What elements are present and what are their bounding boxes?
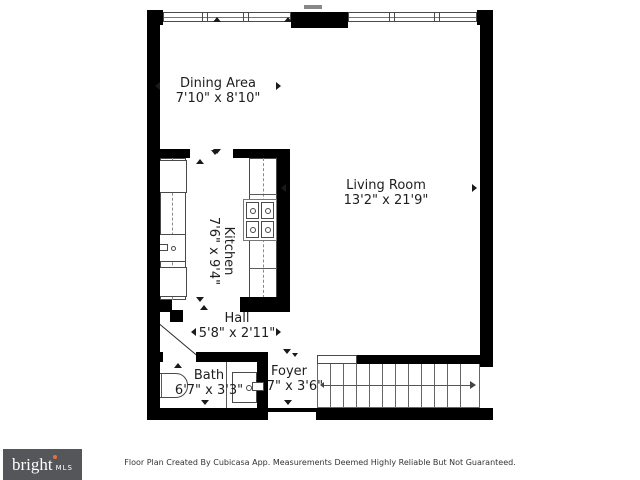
counter-division bbox=[249, 194, 277, 195]
toilet-icon bbox=[252, 382, 264, 391]
window-mullion bbox=[202, 13, 208, 21]
wall-segment bbox=[355, 355, 493, 364]
wall-segment bbox=[160, 149, 190, 158]
opening-marker-icon bbox=[196, 159, 204, 164]
dimension-arrow-icon bbox=[201, 400, 209, 405]
window-glass-line bbox=[164, 17, 290, 18]
window-mullion bbox=[243, 13, 249, 21]
stair-railing bbox=[317, 355, 357, 364]
dimension-arrow-icon bbox=[283, 349, 291, 354]
room-name: Hall bbox=[167, 311, 307, 326]
stair-direction-arrow-icon bbox=[470, 381, 476, 389]
opening-marker-icon bbox=[211, 150, 219, 155]
opening-marker-icon bbox=[196, 297, 204, 302]
room-label-dining-area: Dining Area 7'10" x 8'10" bbox=[148, 76, 288, 106]
wall-segment bbox=[480, 12, 493, 367]
wall-segment bbox=[240, 297, 290, 312]
dimension-arrow-icon bbox=[276, 328, 281, 336]
dimension-arrow-icon bbox=[284, 17, 292, 22]
floor-plan-page: Dining Area 7'10" x 8'10" Living Room 13… bbox=[0, 0, 640, 480]
room-name: Living Room bbox=[316, 178, 456, 193]
wall-segment bbox=[147, 408, 493, 420]
room-label-hall: Hall 5'8" x 2'11" bbox=[167, 311, 307, 341]
sink-drain bbox=[171, 246, 176, 251]
dimension-arrow-icon bbox=[284, 400, 292, 405]
entry-door-opening bbox=[268, 412, 316, 420]
dimension-arrow-icon bbox=[281, 184, 286, 192]
dimension-arrow-icon bbox=[213, 17, 221, 22]
dimension-arrow-icon bbox=[155, 82, 160, 90]
opening-marker-icon bbox=[200, 305, 208, 310]
room-name: Dining Area bbox=[148, 76, 288, 91]
room-label-foyer: Foyer 3'7" x 3'6" bbox=[219, 364, 359, 394]
window-glass-line bbox=[349, 17, 476, 18]
dimension-arrow-icon bbox=[191, 328, 196, 336]
window-mullion bbox=[434, 13, 440, 21]
room-dimensions: 3'7" x 3'6" bbox=[219, 379, 359, 394]
counter-division bbox=[249, 268, 277, 269]
room-dimensions: 13'2" x 21'9" bbox=[316, 193, 456, 208]
window-band bbox=[163, 12, 291, 22]
refrigerator-icon bbox=[158, 160, 187, 193]
kitchen-cabinet bbox=[158, 267, 187, 297]
room-label-living-room: Living Room 13'2" x 21'9" bbox=[316, 178, 456, 208]
wall-segment bbox=[277, 149, 290, 310]
room-name: Kitchen bbox=[221, 181, 236, 321]
wall-segment bbox=[291, 12, 348, 28]
dimension-arrow-icon bbox=[472, 184, 477, 192]
stove-icon bbox=[243, 199, 277, 241]
wall-segment bbox=[170, 310, 183, 322]
wall-mark bbox=[304, 5, 322, 9]
wall-segment bbox=[147, 352, 163, 362]
wall-segment bbox=[147, 300, 172, 312]
room-dimensions: 7'6" x 9'4" bbox=[206, 181, 221, 321]
dimension-arrow-icon bbox=[174, 363, 182, 368]
room-dimensions: 7'10" x 8'10" bbox=[148, 91, 288, 106]
room-name: Foyer bbox=[219, 364, 359, 379]
window-mullion bbox=[389, 13, 395, 21]
room-dimensions: 5'8" x 2'11" bbox=[167, 326, 307, 341]
room-label-kitchen: Kitchen 7'6" x 9'4" bbox=[206, 181, 236, 321]
window-band bbox=[348, 12, 477, 22]
dimension-arrow-icon bbox=[276, 82, 281, 90]
footer-disclaimer: Floor Plan Created By Cubicasa App. Meas… bbox=[0, 458, 640, 467]
dimension-arrow-icon bbox=[292, 353, 298, 357]
